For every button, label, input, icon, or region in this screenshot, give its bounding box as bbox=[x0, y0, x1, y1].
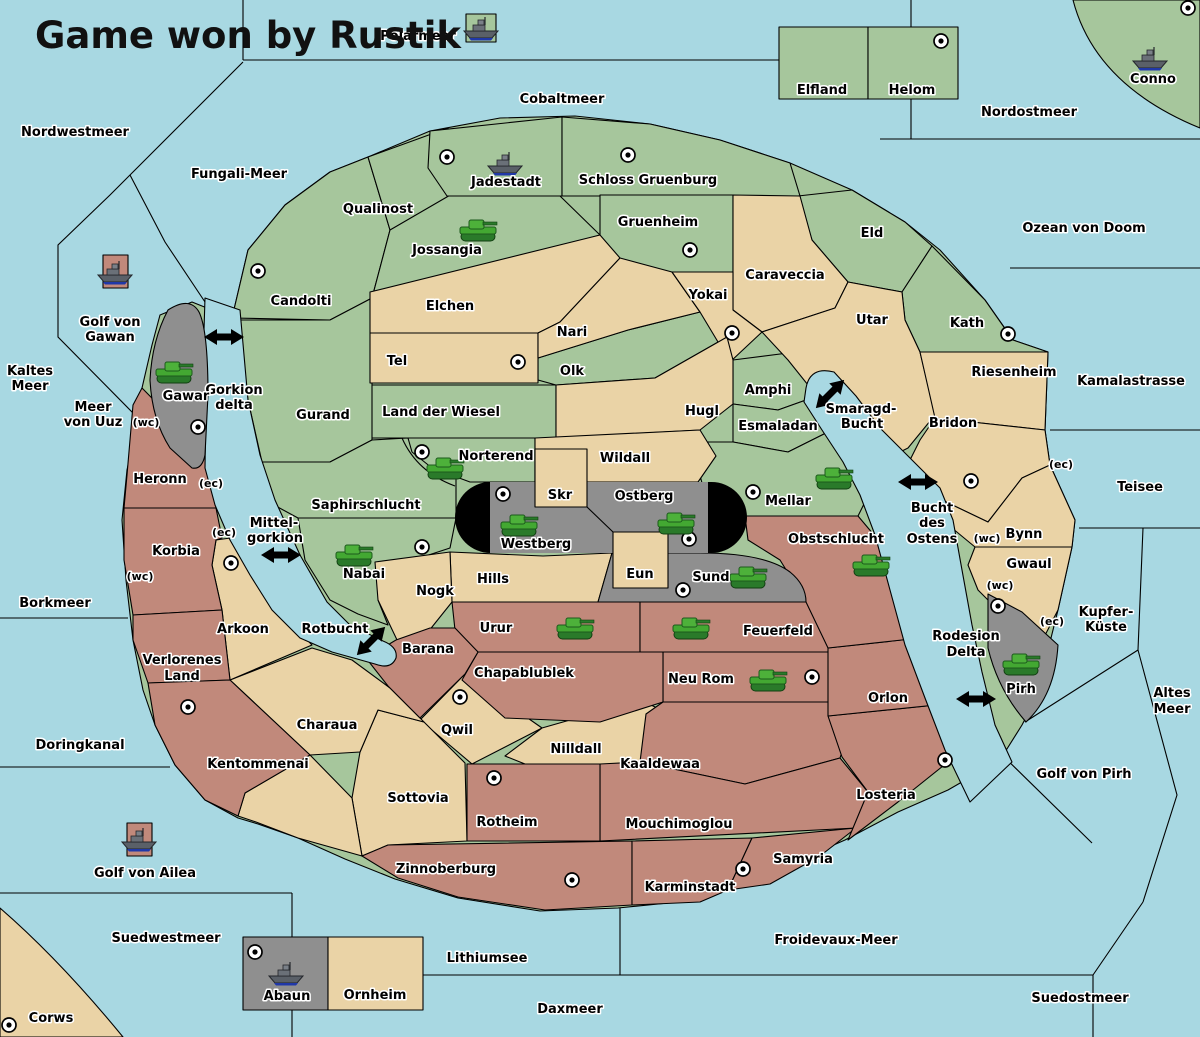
supply-center-norterend-icon bbox=[415, 445, 429, 459]
sea-label-golf-von-gawan-2: Gawan bbox=[85, 330, 134, 345]
label-obstschlucht: Obstschlucht bbox=[788, 532, 884, 547]
label-losteria: Losteria bbox=[856, 788, 916, 803]
label-ornheim: Ornheim bbox=[344, 988, 407, 1003]
supply-center-sund-icon bbox=[676, 583, 690, 597]
tag-gwaul-wc: (wc) bbox=[987, 579, 1014, 592]
label-qwil: Qwil bbox=[441, 723, 473, 738]
label-kaaldewaa: Kaaldewaa bbox=[620, 757, 700, 772]
label-sund: Sund bbox=[692, 570, 729, 585]
sea-label-altes-meer-2: Meer bbox=[1154, 702, 1192, 717]
label-verlorenes-land-1: Verlorenes bbox=[142, 653, 221, 668]
sea-label-kupfer-kueste-1: Kupfer- bbox=[1079, 605, 1134, 620]
supply-center-abaun-icon bbox=[248, 945, 262, 959]
sea-label-kaltes-meer-2: Meer bbox=[12, 379, 50, 394]
label-gwaul: Gwaul bbox=[1006, 557, 1051, 572]
label-barana: Barana bbox=[402, 642, 454, 657]
label-elchen: Elchen bbox=[426, 299, 474, 314]
label-nabai: Nabai bbox=[343, 567, 385, 582]
sea-label-smaragd-bucht-1: Smaragd- bbox=[826, 402, 897, 417]
sea-label-meer-von-uuz-1: Meer bbox=[75, 400, 113, 415]
label-caraveccia: Caraveccia bbox=[745, 268, 824, 283]
label-candolti: Candolti bbox=[271, 294, 332, 309]
sea-label-fungali-meer: Fungali-Meer bbox=[191, 167, 288, 182]
supply-center-gawar-icon bbox=[191, 420, 205, 434]
sea-label-golf-von-ailea: Golf von Ailea bbox=[94, 866, 196, 881]
supply-center-losteria-icon bbox=[938, 753, 952, 767]
sea-label-meer-von-uuz-2: von Uuz bbox=[64, 415, 123, 430]
label-esmaladan: Esmaladan bbox=[738, 419, 818, 434]
label-qualinost: Qualinost bbox=[343, 202, 413, 217]
sea-label-bucht-des-ostens-2: des bbox=[919, 516, 945, 531]
label-norterend: Norterend bbox=[458, 449, 533, 464]
label-mouchimoglou: Mouchimoglou bbox=[626, 817, 733, 832]
label-gurand: Gurand bbox=[296, 408, 350, 423]
label-orlon: Orlon bbox=[868, 691, 908, 706]
sea-label-bucht-des-ostens-3: Ostens bbox=[907, 532, 958, 547]
label-eld: Eld bbox=[861, 226, 884, 241]
label-chapablublek: Chapablublek bbox=[474, 666, 574, 681]
supply-center-yokai-icon bbox=[725, 326, 739, 340]
label-pirh: Pirh bbox=[1006, 682, 1036, 697]
label-arkoon: Arkoon bbox=[217, 622, 269, 637]
supply-center-gruenheim-icon bbox=[683, 243, 697, 257]
label-urur: Urur bbox=[480, 621, 513, 636]
supply-center-jadestadt-icon bbox=[440, 150, 454, 164]
sea-label-teisee: Teisee bbox=[1117, 480, 1163, 495]
label-amphi: Amphi bbox=[745, 383, 792, 398]
tag-bridon-ec: (ec) bbox=[1049, 458, 1073, 471]
sea-label-cobaltmeer: Cobaltmeer bbox=[520, 92, 605, 107]
label-tel: Tel bbox=[387, 354, 407, 369]
label-jadestadt: Jadestadt bbox=[470, 175, 541, 190]
label-nilldall: Nilldall bbox=[550, 742, 601, 757]
sea-label-smaragd-bucht-2: Bucht bbox=[841, 417, 883, 432]
label-kentommenai: Kentommenai bbox=[207, 757, 308, 772]
label-corws: Corws bbox=[29, 1011, 74, 1026]
sea-label-kupfer-kueste-2: Küste bbox=[1085, 620, 1127, 635]
label-utar: Utar bbox=[856, 313, 889, 328]
supply-center-neu-rom-icon bbox=[805, 670, 819, 684]
label-nogk: Nogk bbox=[416, 584, 454, 599]
label-abaun: Abaun bbox=[264, 989, 311, 1004]
label-heronn: Heronn bbox=[133, 472, 187, 487]
sea-label-kaltes-meer-1: Kaltes bbox=[7, 364, 53, 379]
tag-korbia-wc: (wc) bbox=[127, 570, 154, 583]
sea-label-mittelgorkion-1: Mittel- bbox=[250, 516, 299, 531]
label-land-der-wiesel: Land der Wiesel bbox=[382, 405, 500, 420]
sea-label-gorkion-delta-1: Gorkion bbox=[205, 383, 262, 398]
label-nari: Nari bbox=[557, 325, 588, 340]
supply-center-zinnoberburg-icon bbox=[565, 873, 579, 887]
label-hills: Hills bbox=[477, 572, 509, 587]
label-rotheim: Rotheim bbox=[476, 815, 537, 830]
sea-label-froidevaux-meer: Froidevaux-Meer bbox=[774, 933, 898, 948]
supply-center-kath-icon bbox=[1001, 327, 1015, 341]
sea-label-golf-von-pirh: Golf von Pirh bbox=[1036, 767, 1131, 782]
tag-gwaul-ec: (ec) bbox=[1040, 615, 1064, 628]
label-bridon: Bridon bbox=[929, 416, 977, 431]
label-kath: Kath bbox=[950, 316, 984, 331]
supply-center-conno-icon bbox=[1181, 1, 1195, 15]
sea-label-kamalastrasse: Kamalastrasse bbox=[1077, 374, 1185, 389]
label-gawar: Gawar bbox=[163, 389, 210, 404]
label-jossangia: Jossangia bbox=[411, 243, 482, 258]
tag-bynn-wc: (wc) bbox=[974, 532, 1001, 545]
sea-label-ozean-von-doom: Ozean von Doom bbox=[1022, 221, 1145, 236]
label-skr: Skr bbox=[548, 488, 573, 503]
sea-label-lithiumsee: Lithiumsee bbox=[447, 951, 528, 966]
sea-label-nordwestmeer: Nordwestmeer bbox=[21, 125, 129, 140]
label-ostberg: Ostberg bbox=[615, 489, 674, 504]
region-hills bbox=[450, 552, 612, 602]
game-map: Polarmeer Nordwestmeer Fungali-Meer Coba… bbox=[0, 0, 1200, 1037]
sea-label-suedwestmeer: Suedwestmeer bbox=[111, 931, 221, 946]
label-bynn: Bynn bbox=[1006, 527, 1043, 542]
label-feuerfeld: Feuerfeld bbox=[743, 624, 813, 639]
label-olk: Olk bbox=[560, 364, 585, 379]
label-zinnoberburg: Zinnoberburg bbox=[396, 862, 496, 877]
label-elfland: Elfland bbox=[797, 83, 847, 98]
supply-center-westberg-icon bbox=[496, 487, 510, 501]
region-korbia bbox=[124, 508, 222, 615]
sea-label-altes-meer-1: Altes bbox=[1153, 686, 1191, 701]
sea-label-rotbucht: Rotbucht bbox=[302, 622, 369, 637]
sea-label-doringkanal: Doringkanal bbox=[35, 738, 124, 753]
sea-label-rodesion-delta-1: Rodesion bbox=[932, 629, 999, 644]
sea-label-suedostmeer: Suedostmeer bbox=[1031, 991, 1129, 1006]
sea-label-gorkion-delta-2: delta bbox=[215, 398, 253, 413]
sea-label-borkmeer: Borkmeer bbox=[19, 596, 91, 611]
sea-label-mittelgorkion-2: gorkion bbox=[247, 531, 303, 546]
supply-center-mellar-icon bbox=[746, 485, 760, 499]
label-neu-rom: Neu Rom bbox=[668, 672, 734, 687]
label-wildall: Wildall bbox=[600, 451, 650, 466]
supply-center-samyria-icon bbox=[736, 862, 750, 876]
label-eun: Eun bbox=[626, 567, 653, 582]
sea-label-daxmeer: Daxmeer bbox=[537, 1002, 603, 1017]
label-hugl: Hugl bbox=[685, 404, 719, 419]
supply-center-schloss-gruenburg-icon bbox=[621, 148, 635, 162]
tag-heronn-ec: (ec) bbox=[199, 477, 223, 490]
label-conno: Conno bbox=[1130, 72, 1176, 87]
supply-center-tel-icon bbox=[511, 355, 525, 369]
supply-center-candolti-icon bbox=[251, 264, 265, 278]
supply-center-pirh-icon bbox=[991, 599, 1005, 613]
supply-center-rotheim-icon bbox=[487, 771, 501, 785]
label-helom: Helom bbox=[889, 83, 936, 98]
supply-center-bridon-icon bbox=[964, 474, 978, 488]
page-title: Game won by Rustik bbox=[35, 14, 462, 57]
supply-center-qwil-icon bbox=[453, 690, 467, 704]
label-samyria: Samyria bbox=[773, 852, 833, 867]
label-charaua: Charaua bbox=[297, 718, 358, 733]
supply-center-helom-icon bbox=[934, 34, 948, 48]
supply-center-kentommenai-icon bbox=[181, 700, 195, 714]
sea-label-bucht-des-ostens-1: Bucht bbox=[911, 501, 953, 516]
tag-korbia-ec: (ec) bbox=[212, 526, 236, 539]
sea-label-nordostmeer: Nordostmeer bbox=[981, 105, 1078, 120]
supply-center-corws-icon bbox=[2, 1018, 16, 1032]
sea-label-rodesion-delta-2: Delta bbox=[946, 645, 985, 660]
label-korbia: Korbia bbox=[152, 544, 200, 559]
label-saphirschlucht: Saphirschlucht bbox=[311, 498, 420, 513]
sea-label-golf-von-gawan-1: Golf von bbox=[80, 315, 141, 330]
supply-center-arkoon-icon bbox=[224, 556, 238, 570]
label-yokai: Yokai bbox=[687, 288, 727, 303]
label-riesenheim: Riesenheim bbox=[971, 365, 1056, 380]
supply-center-nabai-icon bbox=[415, 540, 429, 554]
label-schloss-gruenburg: Schloss Gruenburg bbox=[579, 173, 717, 188]
label-verlorenes-land-2: Land bbox=[164, 669, 200, 684]
label-mellar: Mellar bbox=[765, 494, 811, 509]
label-karminstadt: Karminstadt bbox=[645, 880, 736, 895]
tag-heronn-wc: (wc) bbox=[133, 416, 160, 429]
label-westberg: Westberg bbox=[501, 537, 571, 552]
label-gruenheim: Gruenheim bbox=[618, 215, 698, 230]
label-sottovia: Sottovia bbox=[387, 791, 448, 806]
